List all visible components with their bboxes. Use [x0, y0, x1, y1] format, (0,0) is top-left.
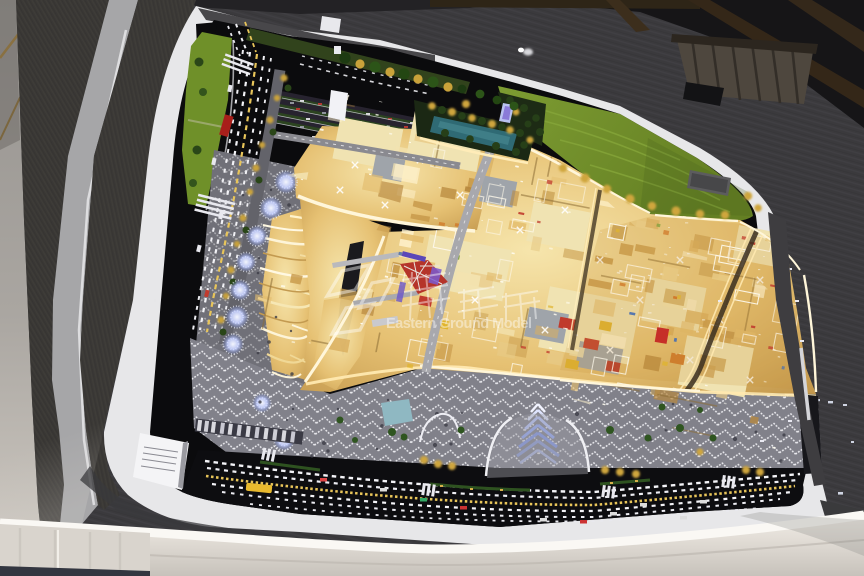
svg-text:Eastern Ground Model: Eastern Ground Model — [386, 316, 532, 332]
